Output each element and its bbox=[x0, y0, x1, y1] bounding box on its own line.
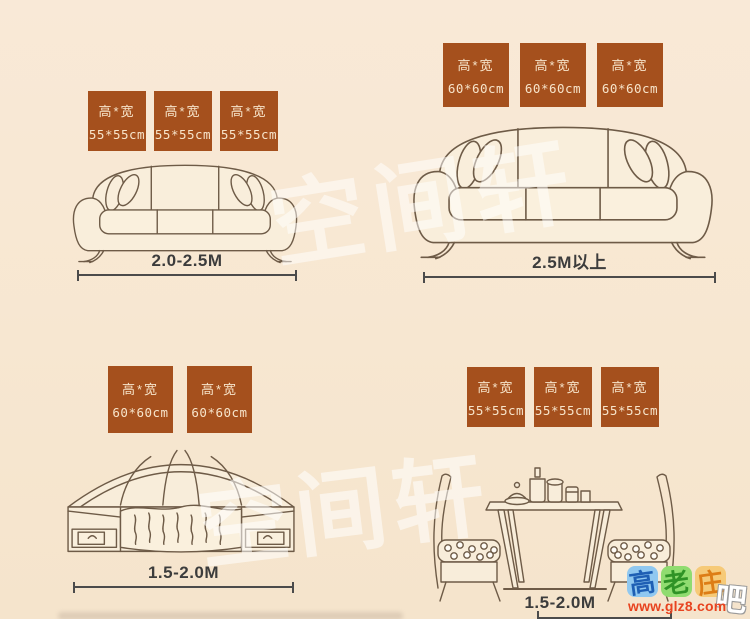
tag-dimension-type: 高*宽 bbox=[220, 101, 278, 120]
site-url: www.glz8.com bbox=[628, 598, 726, 614]
size-tag: 高*宽 55*55cm bbox=[88, 91, 146, 151]
logo-char: 老 bbox=[661, 561, 692, 601]
tag-dimension-value: 55*55cm bbox=[534, 403, 592, 418]
logo-char-tile: 高 bbox=[627, 566, 658, 597]
dining-size-label: 1.5-2.0M bbox=[495, 593, 625, 613]
tag-dimension-type: 高*宽 bbox=[467, 377, 525, 396]
tag-dimension-value: 60*60cm bbox=[520, 81, 586, 96]
tag-dimension-value: 60*60cm bbox=[597, 81, 663, 96]
tag-dimension-value: 60*60cm bbox=[187, 405, 252, 420]
small-sofa-measure-line bbox=[77, 274, 297, 276]
tag-dimension-type: 高*宽 bbox=[154, 101, 212, 120]
size-tag: 高*宽 60*60cm bbox=[520, 43, 586, 107]
bed-measure-line bbox=[73, 586, 294, 588]
dining-measure: 1.5-2.0M bbox=[495, 593, 625, 616]
tag-dimension-type: 高*宽 bbox=[443, 55, 509, 74]
small-sofa-measure: 2.0-2.5M bbox=[77, 251, 297, 276]
tag-dimension-type: 高*宽 bbox=[187, 379, 252, 398]
tag-dimension-value: 60*60cm bbox=[443, 81, 509, 96]
tag-dimension-value: 55*55cm bbox=[154, 127, 212, 142]
tag-dimension-type: 高*宽 bbox=[534, 377, 592, 396]
logo-char: 高 bbox=[627, 561, 658, 601]
small-sofa-size-label: 2.0-2.5M bbox=[77, 251, 297, 271]
size-tag: 高*宽 60*60cm bbox=[597, 43, 663, 107]
tag-dimension-value: 55*55cm bbox=[467, 403, 525, 418]
bed-drawing bbox=[62, 448, 300, 562]
tag-dimension-value: 55*55cm bbox=[220, 127, 278, 142]
size-tag: 高*宽 60*60cm bbox=[108, 366, 173, 433]
tag-dimension-value: 55*55cm bbox=[601, 403, 659, 418]
large-sofa-measure: 2.5M以上 bbox=[423, 248, 716, 278]
dining-measure-tick-left bbox=[537, 611, 539, 619]
site-logo: 高 老 庄 bbox=[627, 566, 726, 597]
tag-row-large-sofa: 高*宽 60*60cm 高*宽 60*60cm 高*宽 60*60cm bbox=[443, 43, 663, 107]
size-tag: 高*宽 55*55cm bbox=[601, 367, 659, 427]
size-tag: 高*宽 60*60cm bbox=[187, 366, 252, 433]
tag-dimension-value: 55*55cm bbox=[88, 127, 146, 142]
tag-row-bed: 高*宽 60*60cm 高*宽 60*60cm bbox=[108, 366, 252, 433]
tag-dimension-type: 高*宽 bbox=[520, 55, 586, 74]
small-sofa-drawing bbox=[66, 150, 304, 266]
tag-row-dining: 高*宽 55*55cm 高*宽 55*55cm 高*宽 55*55cm bbox=[467, 367, 659, 427]
tag-dimension-type: 高*宽 bbox=[88, 101, 146, 120]
bed-measure: 1.5-2.0M bbox=[73, 563, 294, 588]
size-tag: 高*宽 60*60cm bbox=[443, 43, 509, 107]
cutoff-text-remnant bbox=[58, 612, 403, 619]
tag-row-small-sofa: 高*宽 55*55cm 高*宽 55*55cm 高*宽 55*55cm bbox=[88, 91, 278, 151]
size-tag: 高*宽 55*55cm bbox=[220, 91, 278, 151]
logo-char-tile: 老 bbox=[661, 566, 692, 597]
large-sofa-measure-line bbox=[423, 276, 716, 278]
tag-dimension-value: 60*60cm bbox=[108, 405, 173, 420]
size-tag: 高*宽 55*55cm bbox=[534, 367, 592, 427]
bed-size-label: 1.5-2.0M bbox=[73, 563, 294, 583]
tag-dimension-type: 高*宽 bbox=[108, 379, 173, 398]
infographic-canvas: 高*宽 55*55cm 高*宽 55*55cm 高*宽 55*55cm bbox=[0, 0, 750, 619]
tag-dimension-type: 高*宽 bbox=[597, 55, 663, 74]
large-sofa-drawing bbox=[404, 110, 722, 260]
large-sofa-size-label: 2.5M以上 bbox=[423, 248, 716, 273]
tag-dimension-type: 高*宽 bbox=[601, 377, 659, 396]
size-tag: 高*宽 55*55cm bbox=[467, 367, 525, 427]
size-tag: 高*宽 55*55cm bbox=[154, 91, 212, 151]
